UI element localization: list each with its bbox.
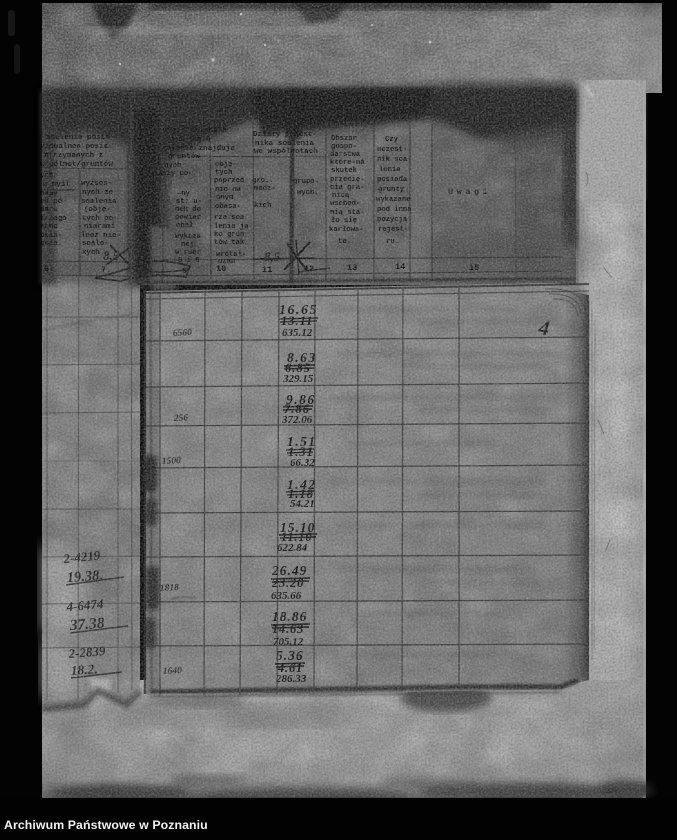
svg-text:Archiwum Państwowe w Poznaniu: Archiwum Państwowe w Poznaniu bbox=[4, 818, 208, 832]
